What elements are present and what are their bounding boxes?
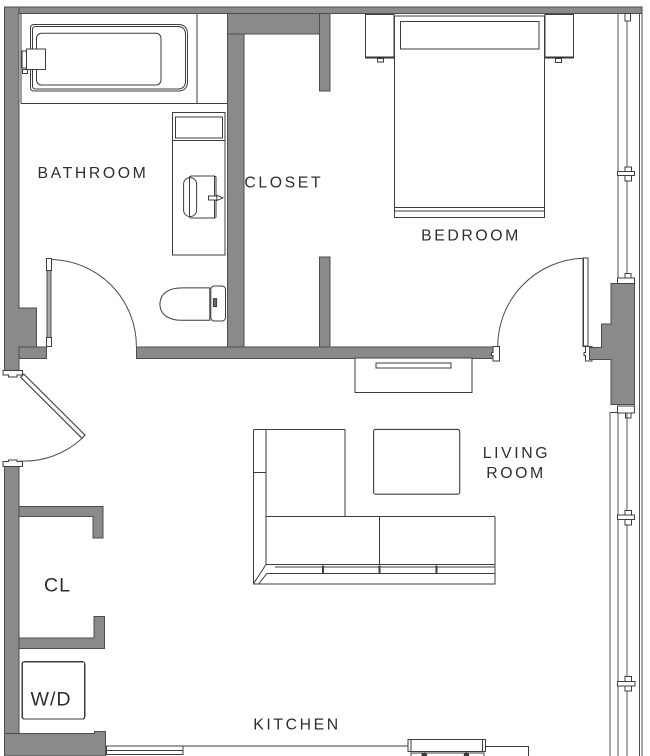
svg-text:BATHROOM: BATHROOM [38, 165, 149, 182]
svg-text:ROOM: ROOM [486, 465, 546, 482]
svg-text:CLOSET: CLOSET [244, 175, 323, 192]
svg-text:W/D: W/D [30, 689, 71, 711]
svg-text:LIVING: LIVING [483, 445, 550, 462]
svg-text:BEDROOM: BEDROOM [421, 228, 521, 245]
svg-text:KITCHEN: KITCHEN [253, 717, 341, 734]
svg-text:CL: CL [44, 575, 71, 597]
